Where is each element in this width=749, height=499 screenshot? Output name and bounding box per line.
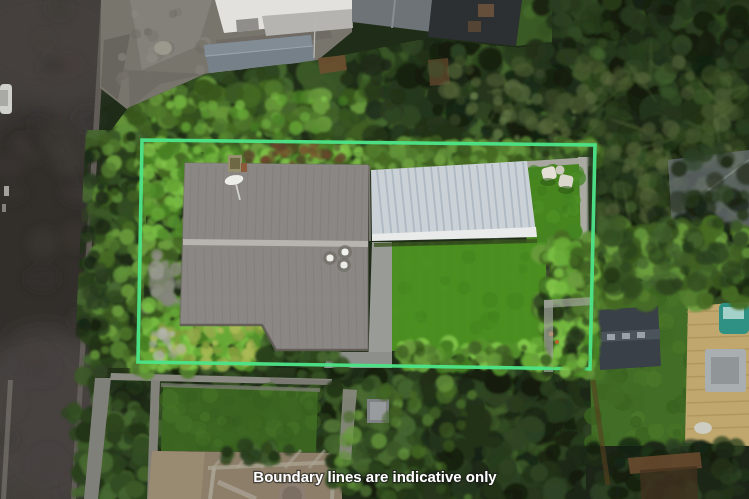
svg-text:Boundary lines are indicative: Boundary lines are indicative only [253,468,497,485]
